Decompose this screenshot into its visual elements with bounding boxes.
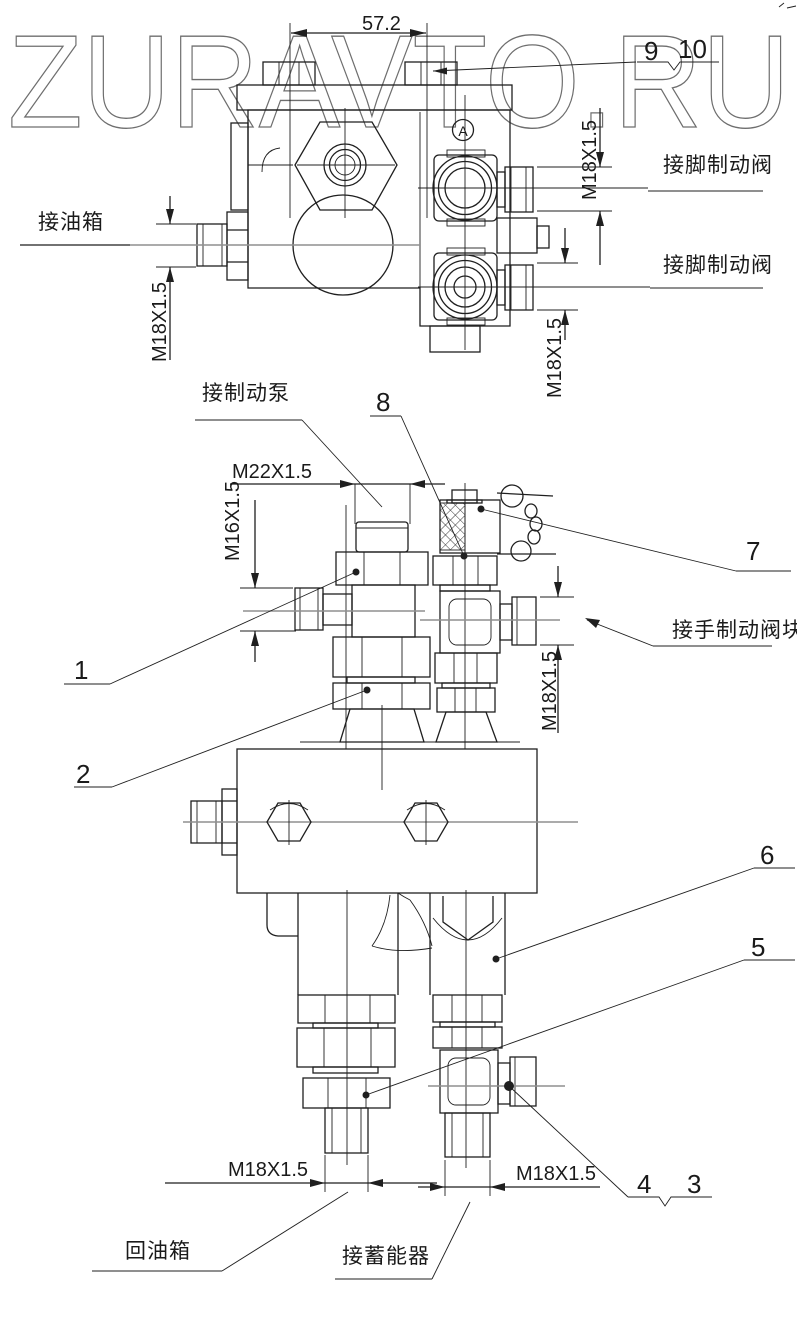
dim-m18-bottom-left-text: M18X1.5 xyxy=(228,1159,308,1181)
callout-4-text: 4 xyxy=(637,1169,651,1199)
label-foot-brake-lower-text: 接脚制动阀 xyxy=(663,254,773,277)
label-hand-brake-text: 接手制动阀块 xyxy=(672,619,797,642)
label-return-oil-tank: 回油箱 xyxy=(92,1192,348,1271)
dim-m18-upper-right-text: M18X1.5 xyxy=(579,120,601,200)
dim-m18-left-text: M18X1.5 xyxy=(149,282,171,362)
label-accumulator: 接蓄能器 xyxy=(335,1202,470,1279)
dim-m18-left: M18X1.5 xyxy=(149,196,196,362)
callout-6: 6 xyxy=(493,840,796,963)
valve-assembly-drawing: ZURAVTO.RU 57.2 xyxy=(0,0,797,1329)
dim-m22: M22X1.5 xyxy=(230,461,445,524)
manifold-block xyxy=(237,749,537,893)
dim-m18-lower-right-text: M18X1.5 xyxy=(544,318,566,398)
callout-9: 9 xyxy=(644,36,658,66)
body-bottom-tab xyxy=(430,326,480,352)
dim-m16-text: M16X1.5 xyxy=(222,481,244,561)
dim-m18-bottom-right: M18X1.5 xyxy=(418,1160,600,1196)
dim-m18-middle-right-text: M18X1.5 xyxy=(539,651,561,731)
callout-7: 7 xyxy=(478,506,792,572)
label-hand-brake-valve-block: 接手制动阀块 xyxy=(585,618,797,646)
return-stem xyxy=(267,893,432,995)
callout-5-text: 5 xyxy=(751,932,765,962)
mid-bracket xyxy=(497,218,537,253)
middle-assembly: 接制动泵 xyxy=(64,382,797,789)
callout-2-text: 2 xyxy=(76,759,90,789)
foot-brake-port-lower xyxy=(433,248,533,325)
accumulator-stem xyxy=(430,893,505,995)
callout-2: 2 xyxy=(74,687,371,790)
dim-top-width-text: 57.2 xyxy=(362,13,401,35)
callout-3-text: 3 xyxy=(687,1169,701,1199)
callout-5: 5 xyxy=(363,932,796,1099)
datum-a-label: A xyxy=(458,123,468,139)
lower-assembly: 6 5 4 3 M18X1.5 M18X1.5 xyxy=(92,705,795,1279)
label-foot-brake-valve-upper: 接脚制动阀 xyxy=(648,154,773,191)
dust-cap-chain xyxy=(497,485,556,561)
callout-10: 10 xyxy=(678,34,707,64)
dim-m18-middle-right: M18X1.5 xyxy=(539,566,574,733)
dim-m18-lower-right: M18X1.5 xyxy=(537,228,578,398)
dim-m22-text: M22X1.5 xyxy=(232,461,312,483)
dim-m18-bottom-left: M18X1.5 xyxy=(165,1155,437,1192)
label-return-oil-tank-text: 回油箱 xyxy=(125,1240,191,1263)
label-oil-tank-text: 接油箱 xyxy=(38,211,104,234)
dim-m18-bottom-right-text: M18X1.5 xyxy=(516,1163,596,1185)
callout-1-text: 1 xyxy=(74,655,88,685)
drawing-page: ZURAVTO.RU 57.2 xyxy=(0,0,797,1329)
dim-m16: M16X1.5 xyxy=(222,481,296,662)
callout-1: 1 xyxy=(64,569,360,686)
callout-8-text: 8 xyxy=(376,387,390,417)
callout-7-text: 7 xyxy=(746,536,760,566)
tank-port xyxy=(197,212,248,280)
hand-brake-tee xyxy=(433,556,536,742)
label-brake-pump-text: 接制动泵 xyxy=(202,382,290,405)
label-foot-brake-valve-lower: 接脚制动阀 xyxy=(650,254,773,288)
label-accumulator-text: 接蓄能器 xyxy=(342,1245,430,1268)
label-foot-brake-upper-text: 接脚制动阀 xyxy=(663,154,773,177)
pump-port-fitting xyxy=(295,522,430,742)
accumulator-fitting-stack xyxy=(433,890,536,1168)
label-oil-tank: 接油箱 xyxy=(20,211,130,245)
callout-6-text: 6 xyxy=(760,840,774,870)
